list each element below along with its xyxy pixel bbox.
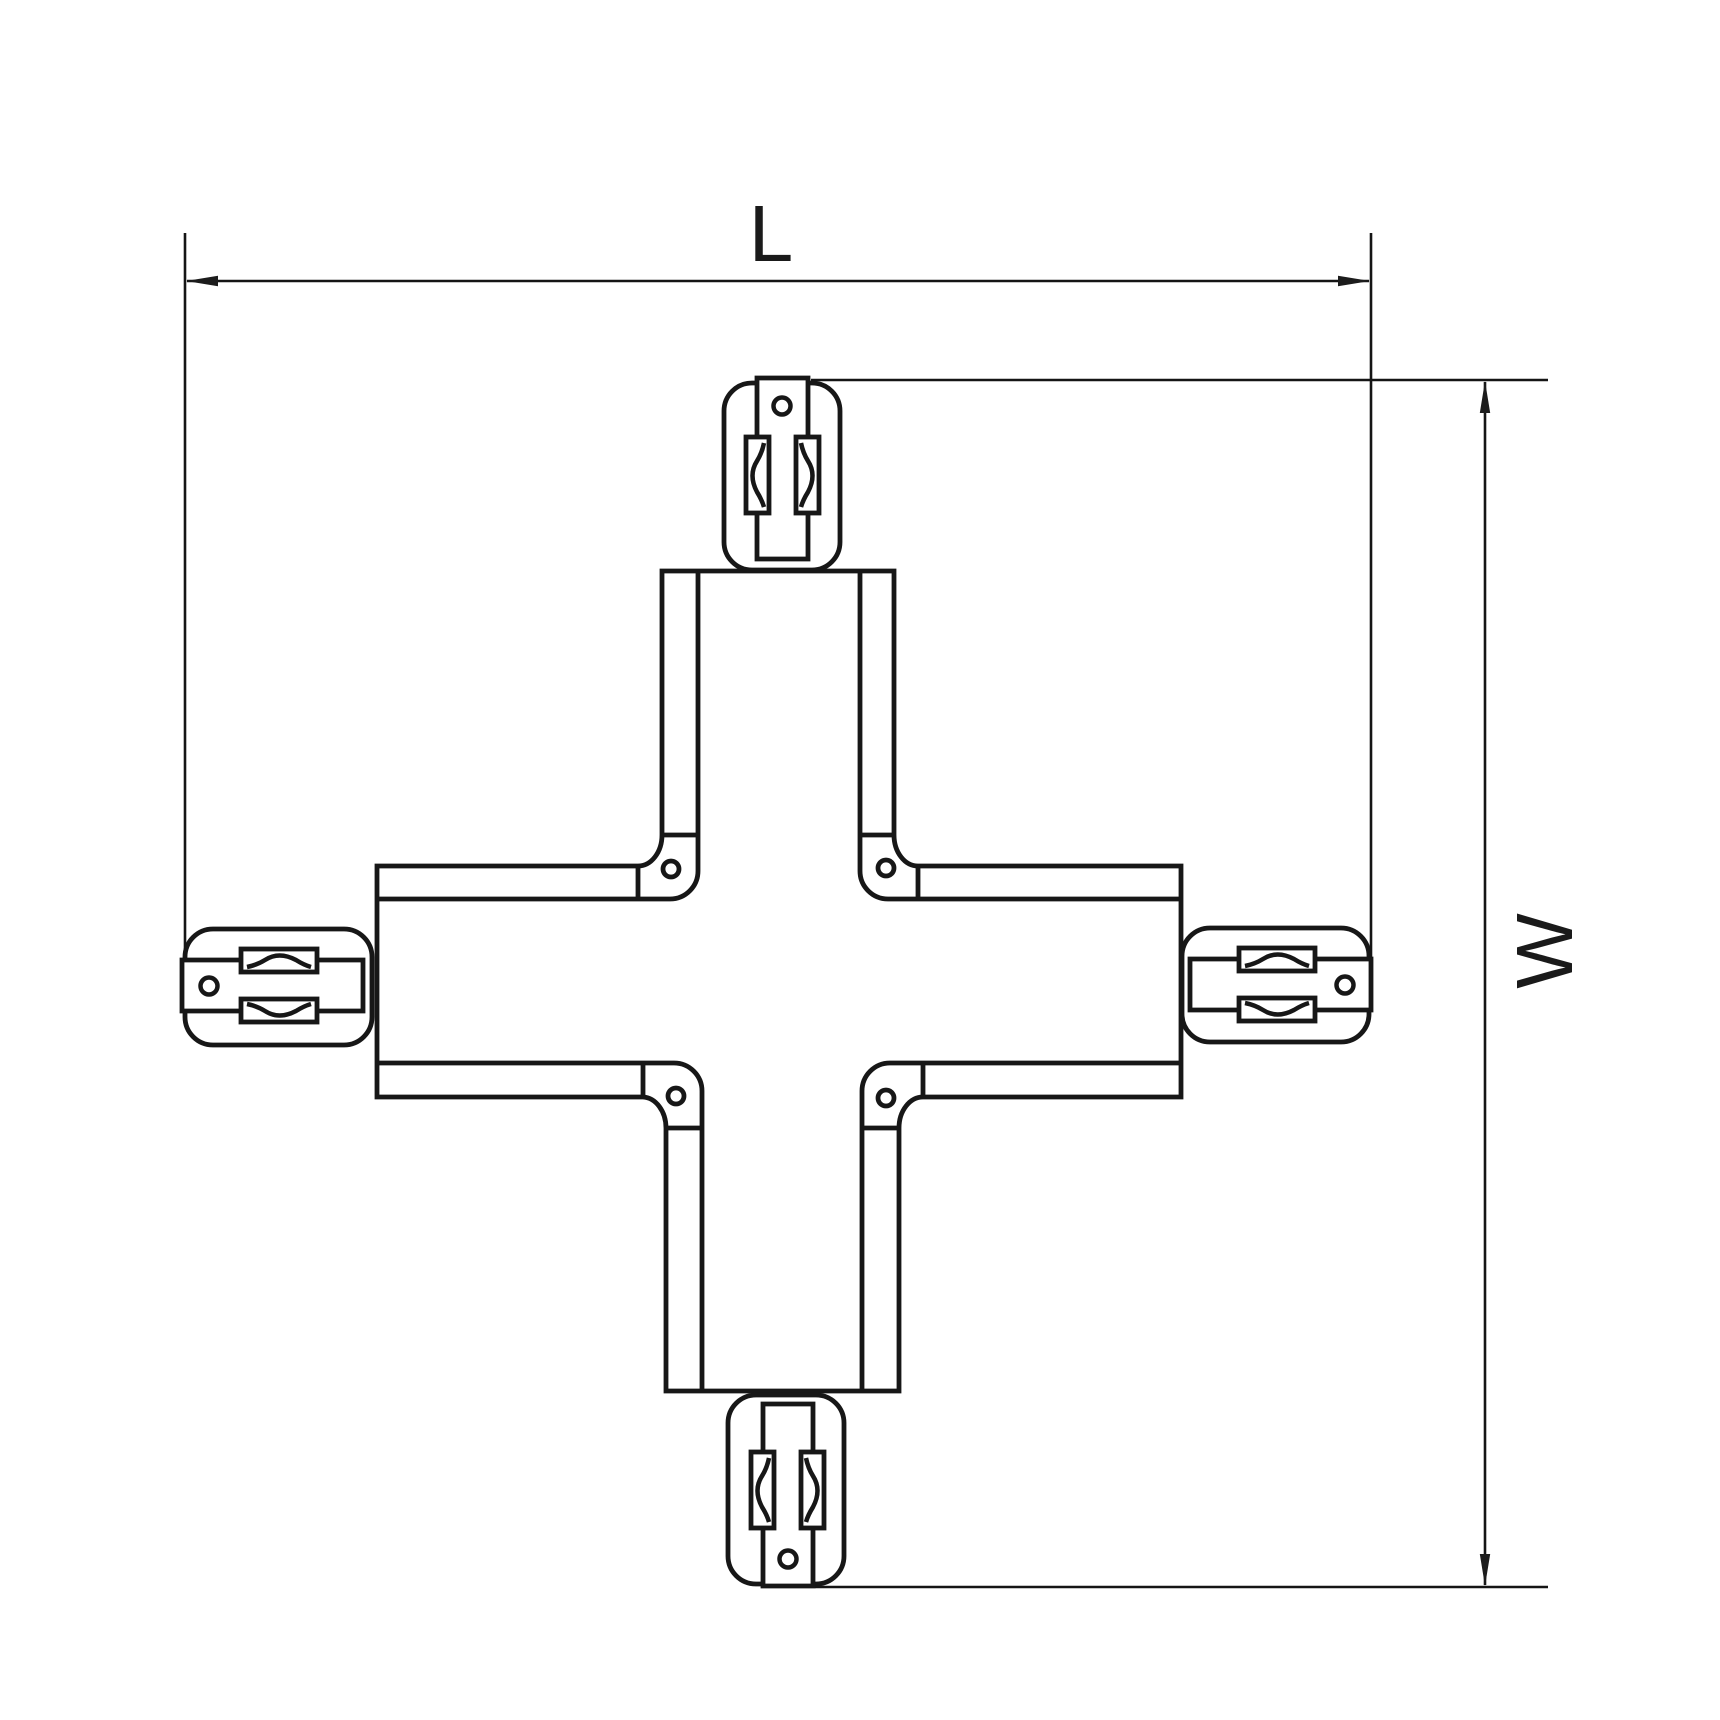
- svg-text:W: W: [1500, 913, 1589, 989]
- svg-text:L: L: [749, 189, 794, 278]
